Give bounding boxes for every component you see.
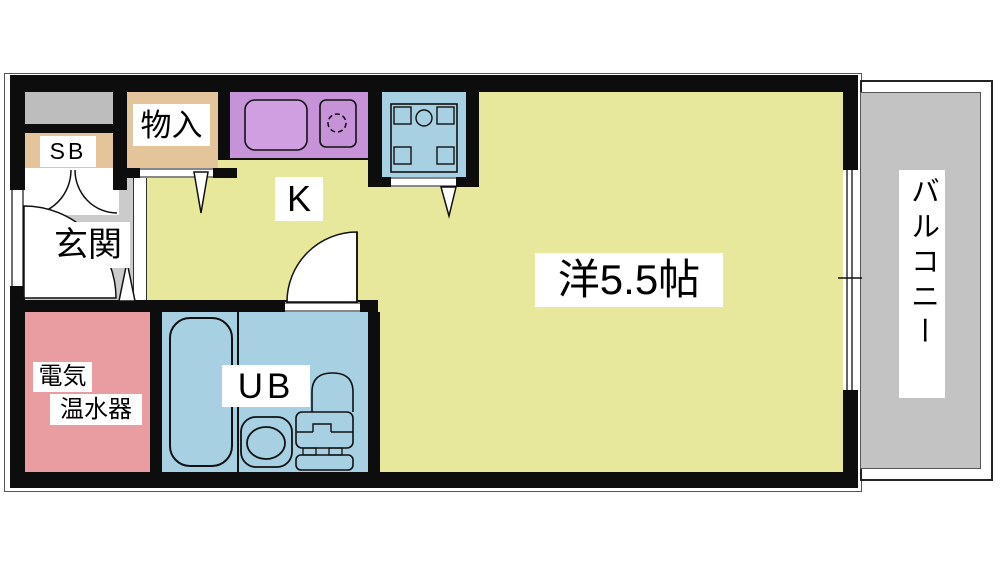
washbasin-foot: [329, 448, 342, 455]
washbasin-counter: [296, 412, 353, 448]
washbasin-foot: [303, 448, 316, 455]
storage-opening-marker: [194, 172, 208, 213]
toilet-bowl: [247, 427, 285, 459]
label-main-room: 洋5.5帖: [535, 253, 723, 307]
washbasin-tap: [296, 424, 353, 432]
stove-burner-icon: [328, 114, 346, 132]
washing-machine-icon: [391, 104, 457, 172]
washing-machine-drain: [416, 110, 432, 126]
washer-opening-marker: [441, 187, 456, 216]
label-kitchen: K: [275, 177, 323, 221]
floor-plan: SB 物入 K 玄関 電気 温水器 UB 洋5.5帖 バルコニー: [0, 0, 1000, 562]
washer-sill-lines: [391, 178, 456, 186]
label-storage: 物入: [133, 104, 210, 146]
washing-machine-corner: [437, 147, 454, 164]
label-balcony: バルコニー: [899, 170, 945, 398]
balcony-window: [847, 170, 852, 390]
label-unit-bath: UB: [222, 365, 310, 407]
label-water-heater-line1: 電気: [33, 362, 92, 392]
bath-door-arc: [287, 232, 357, 302]
label-water-heater-line2: 温水器: [50, 394, 142, 425]
closet-door-arc-right: [75, 170, 117, 213]
kitchen-sink-icon: [245, 100, 307, 150]
washbasin-drawer: [296, 455, 353, 470]
washing-machine-corner: [437, 107, 454, 124]
washbasin-icon: [312, 373, 353, 412]
washing-machine-corner: [394, 147, 411, 164]
bath-door-sill-lines: [285, 303, 360, 311]
washing-machine-corner: [394, 107, 411, 124]
entry-door-leaf: [12, 190, 23, 286]
floorplan-linework: [0, 0, 1000, 562]
label-entrance: 玄関: [46, 222, 130, 268]
label-shoebox: SB: [40, 136, 96, 167]
stove-icon: [320, 100, 356, 147]
